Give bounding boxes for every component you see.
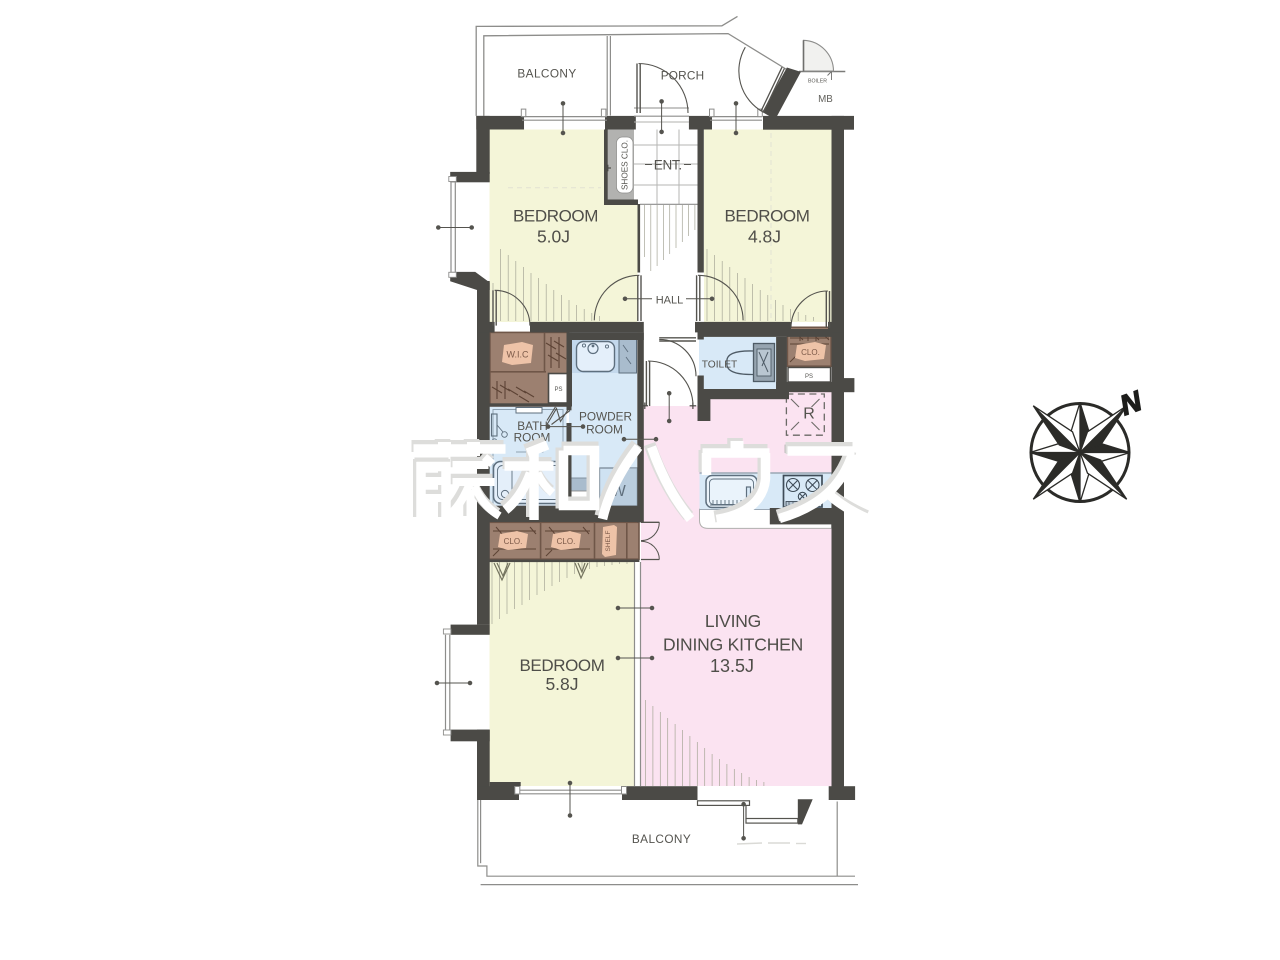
svg-text:BOILER: BOILER — [808, 78, 827, 84]
svg-text:HALL: HALL — [656, 295, 684, 307]
svg-text:BALCONY: BALCONY — [632, 832, 691, 846]
svg-text:13.5J: 13.5J — [710, 656, 754, 676]
svg-text:MB: MB — [818, 94, 833, 105]
svg-text:BALCONY: BALCONY — [517, 67, 576, 81]
svg-text:TOILET: TOILET — [702, 360, 737, 371]
svg-text:W.I.C: W.I.C — [507, 350, 529, 360]
svg-text:R: R — [803, 406, 815, 423]
svg-text:5.8J: 5.8J — [545, 674, 578, 694]
svg-text:BEDROOM: BEDROOM — [724, 207, 809, 226]
svg-text:PS: PS — [554, 387, 562, 393]
svg-text:BEDROOM: BEDROOM — [519, 656, 604, 675]
svg-text:CLO.: CLO. — [504, 537, 523, 546]
svg-text:PS: PS — [805, 374, 813, 380]
svg-text:DINING KITCHEN: DINING KITCHEN — [663, 635, 803, 655]
svg-text:SHOES CLO.: SHOES CLO. — [621, 140, 630, 190]
svg-text:CLO.: CLO. — [557, 537, 576, 546]
svg-text:PORCH: PORCH — [661, 69, 705, 83]
svg-text:4.8J: 4.8J — [748, 227, 781, 247]
svg-text:ENT.: ENT. — [654, 158, 682, 173]
svg-text:BEDROOM: BEDROOM — [513, 207, 598, 226]
svg-text:5.0J: 5.0J — [537, 227, 570, 247]
svg-text:CLO.: CLO. — [801, 348, 820, 357]
svg-text:ROOM: ROOM — [586, 423, 623, 437]
svg-text:LIVING: LIVING — [705, 611, 761, 631]
svg-text:POWDER: POWDER — [579, 410, 632, 424]
svg-text:SHELF: SHELF — [605, 530, 612, 551]
